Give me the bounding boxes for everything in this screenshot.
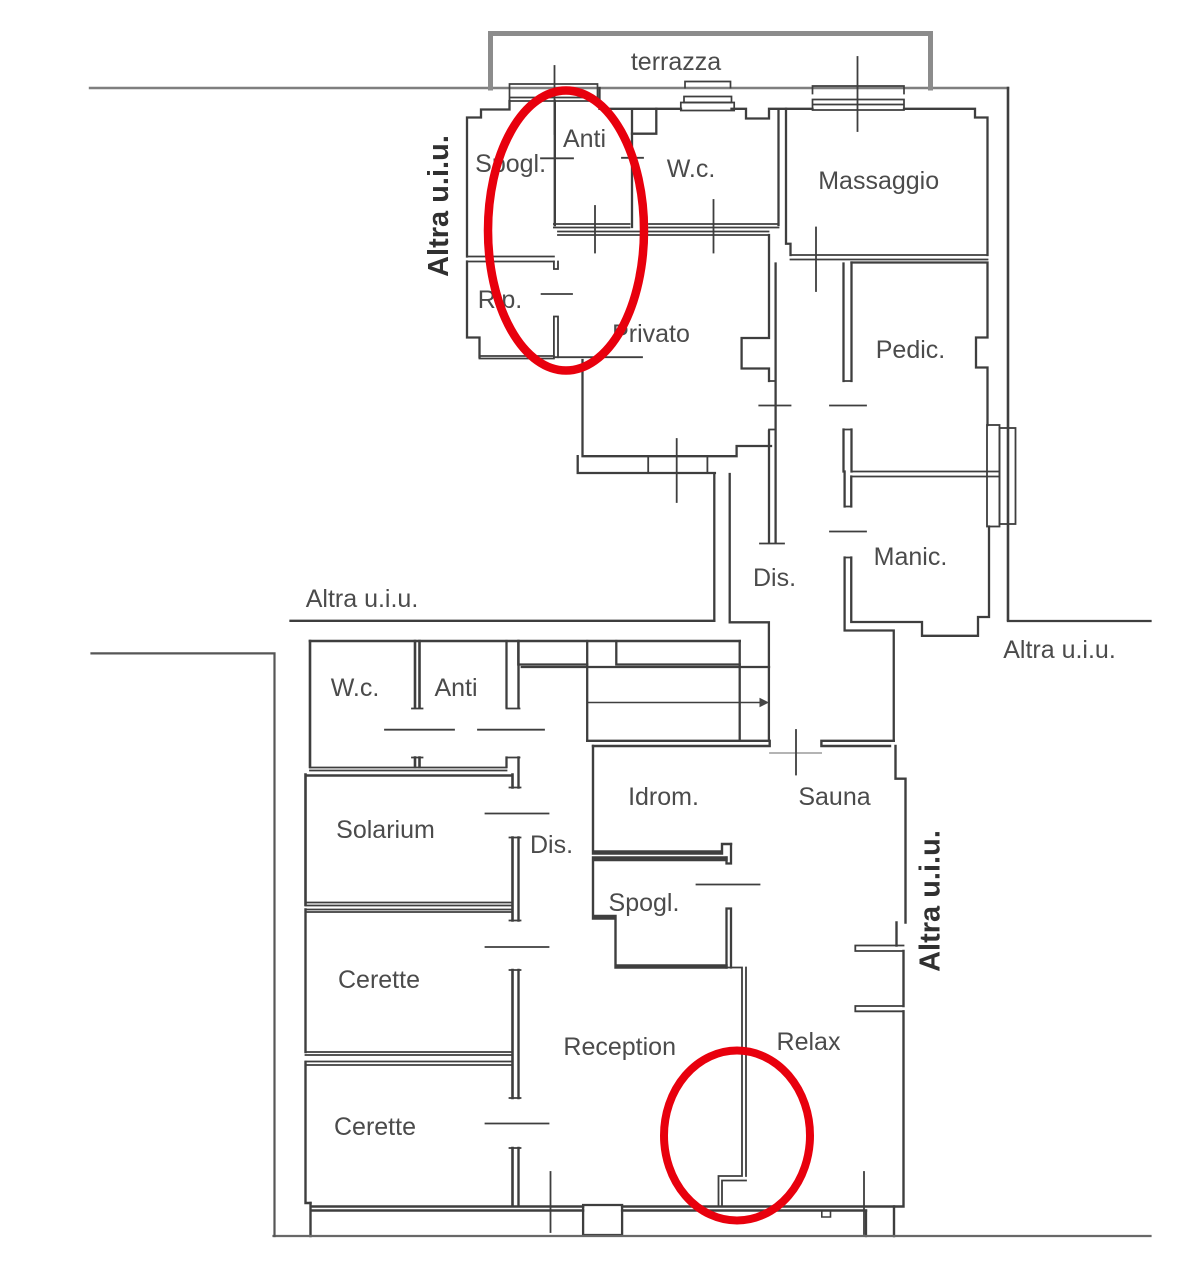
- svg-text:W.c.: W.c.: [667, 155, 716, 183]
- svg-text:Reception: Reception: [563, 1033, 676, 1061]
- svg-text:Altra u.i.u.: Altra u.i.u.: [423, 135, 455, 277]
- svg-text:Cerette: Cerette: [338, 966, 420, 994]
- svg-text:Massaggio: Massaggio: [818, 167, 939, 195]
- svg-text:Pedic.: Pedic.: [876, 336, 945, 364]
- svg-text:Manic.: Manic.: [874, 543, 948, 571]
- svg-text:terrazza: terrazza: [631, 48, 721, 76]
- svg-text:Altra u.i.u.: Altra u.i.u.: [306, 585, 419, 613]
- svg-text:Anti: Anti: [563, 125, 606, 153]
- svg-text:Relax: Relax: [777, 1028, 841, 1056]
- svg-text:Spogl.: Spogl.: [475, 150, 546, 178]
- svg-text:Spogl.: Spogl.: [609, 889, 680, 917]
- svg-text:Idrom.: Idrom.: [628, 783, 699, 811]
- svg-text:Dis.: Dis.: [530, 831, 573, 859]
- svg-text:Solarium: Solarium: [336, 816, 435, 844]
- svg-text:Dis.: Dis.: [753, 564, 796, 592]
- svg-text:W.c.: W.c.: [331, 674, 380, 702]
- svg-text:Sauna: Sauna: [798, 783, 870, 811]
- svg-text:Altra u.i.u.: Altra u.i.u.: [1003, 636, 1116, 664]
- svg-text:Altra u.i.u.: Altra u.i.u.: [915, 830, 947, 972]
- svg-text:Anti: Anti: [434, 674, 477, 702]
- svg-text:Cerette: Cerette: [334, 1113, 416, 1141]
